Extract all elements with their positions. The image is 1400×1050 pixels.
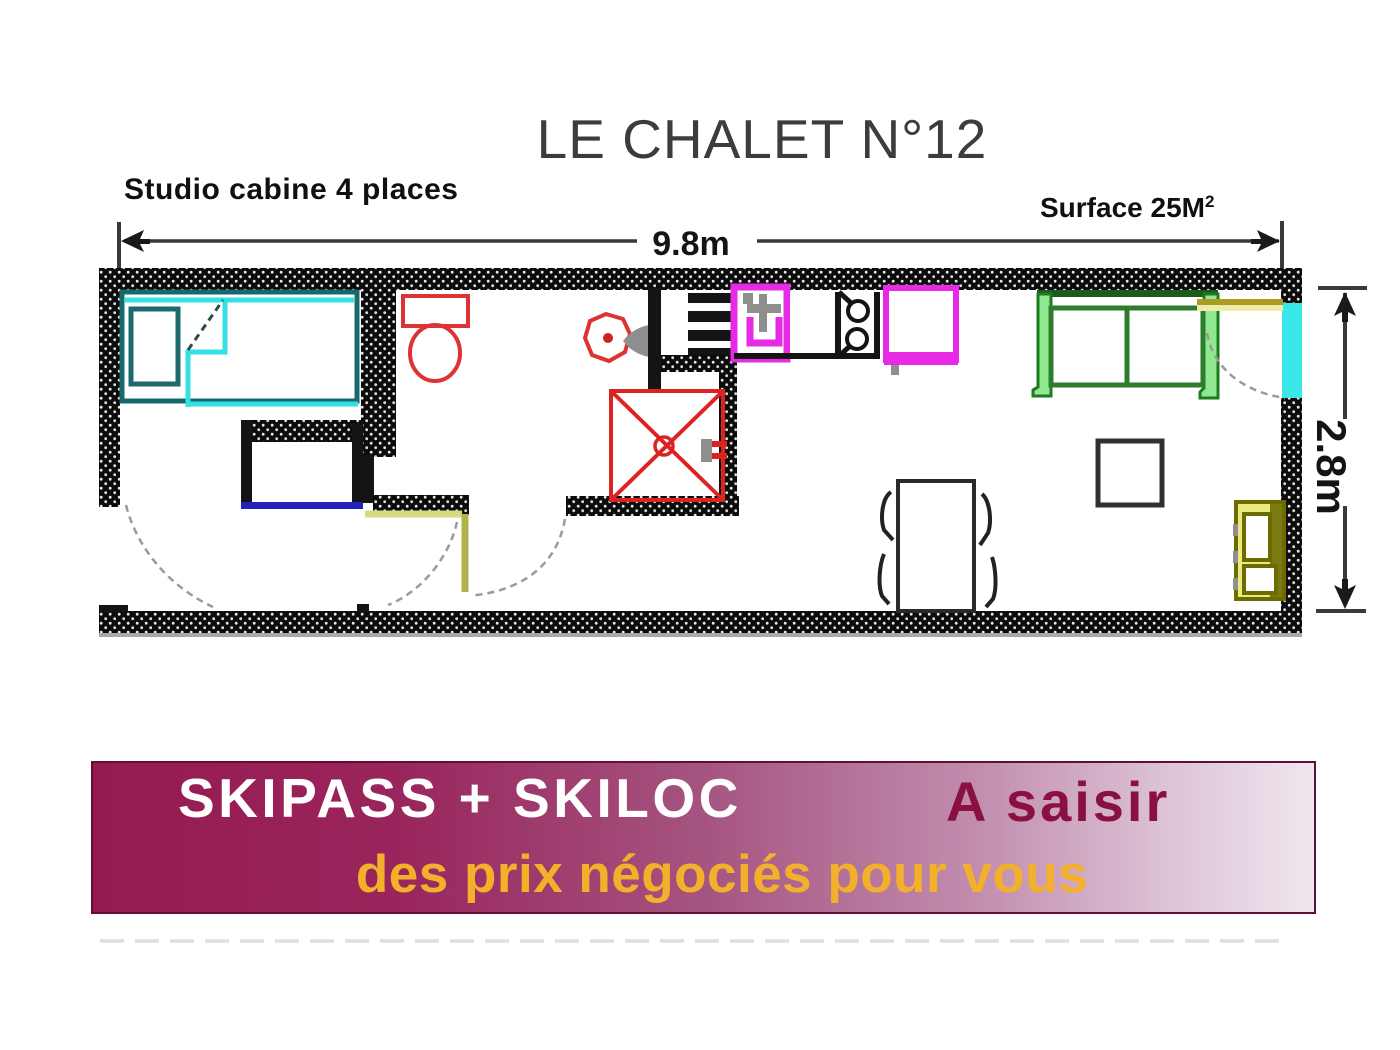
svg-text:SKIPASS + SKILOC: SKIPASS + SKILOC bbox=[178, 767, 742, 829]
svg-text:Surface 25M2: Surface 25M2 bbox=[1040, 192, 1214, 223]
svg-text:2.8m: 2.8m bbox=[1308, 419, 1355, 515]
svg-text:des prix négociés pour vous: des prix négociés pour vous bbox=[356, 845, 1088, 904]
svg-text:LE CHALET N°12: LE CHALET N°12 bbox=[537, 108, 988, 170]
svg-text:Studio cabine 4 places: Studio cabine 4 places bbox=[124, 173, 458, 206]
svg-text:A saisir: A saisir bbox=[946, 770, 1170, 833]
svg-text:9.8m: 9.8m bbox=[652, 225, 730, 263]
